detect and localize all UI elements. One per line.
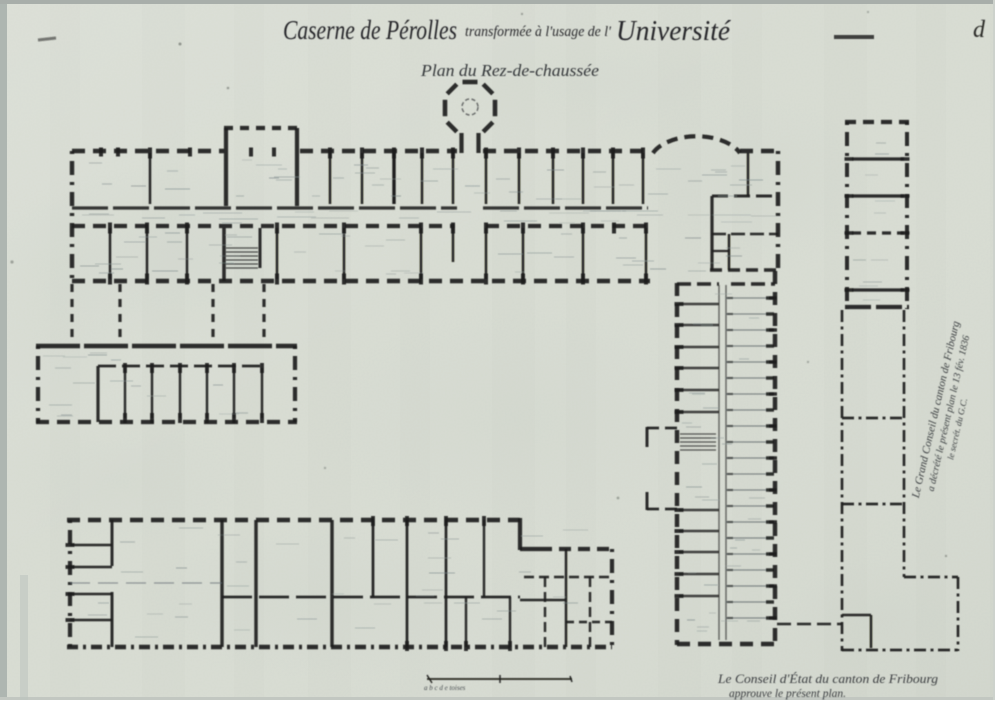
svg-text:transformée à l'usage de l': transformée à l'usage de l' bbox=[465, 24, 612, 40]
svg-text:Université: Université bbox=[616, 15, 731, 47]
svg-text:Le Conseil d'État du canton de: Le Conseil d'État du canton de Fribourg bbox=[717, 671, 939, 686]
svg-text:approuve le présent plan.: approuve le présent plan. bbox=[729, 686, 846, 700]
svg-text:a b c d e toises: a b c d e toises bbox=[424, 684, 466, 692]
svg-text:d: d bbox=[973, 17, 986, 43]
svg-text:Plan du Rez-de-chaussée: Plan du Rez-de-chaussée bbox=[420, 61, 600, 80]
svg-text:Caserne de Pérolles: Caserne de Pérolles bbox=[283, 15, 457, 45]
